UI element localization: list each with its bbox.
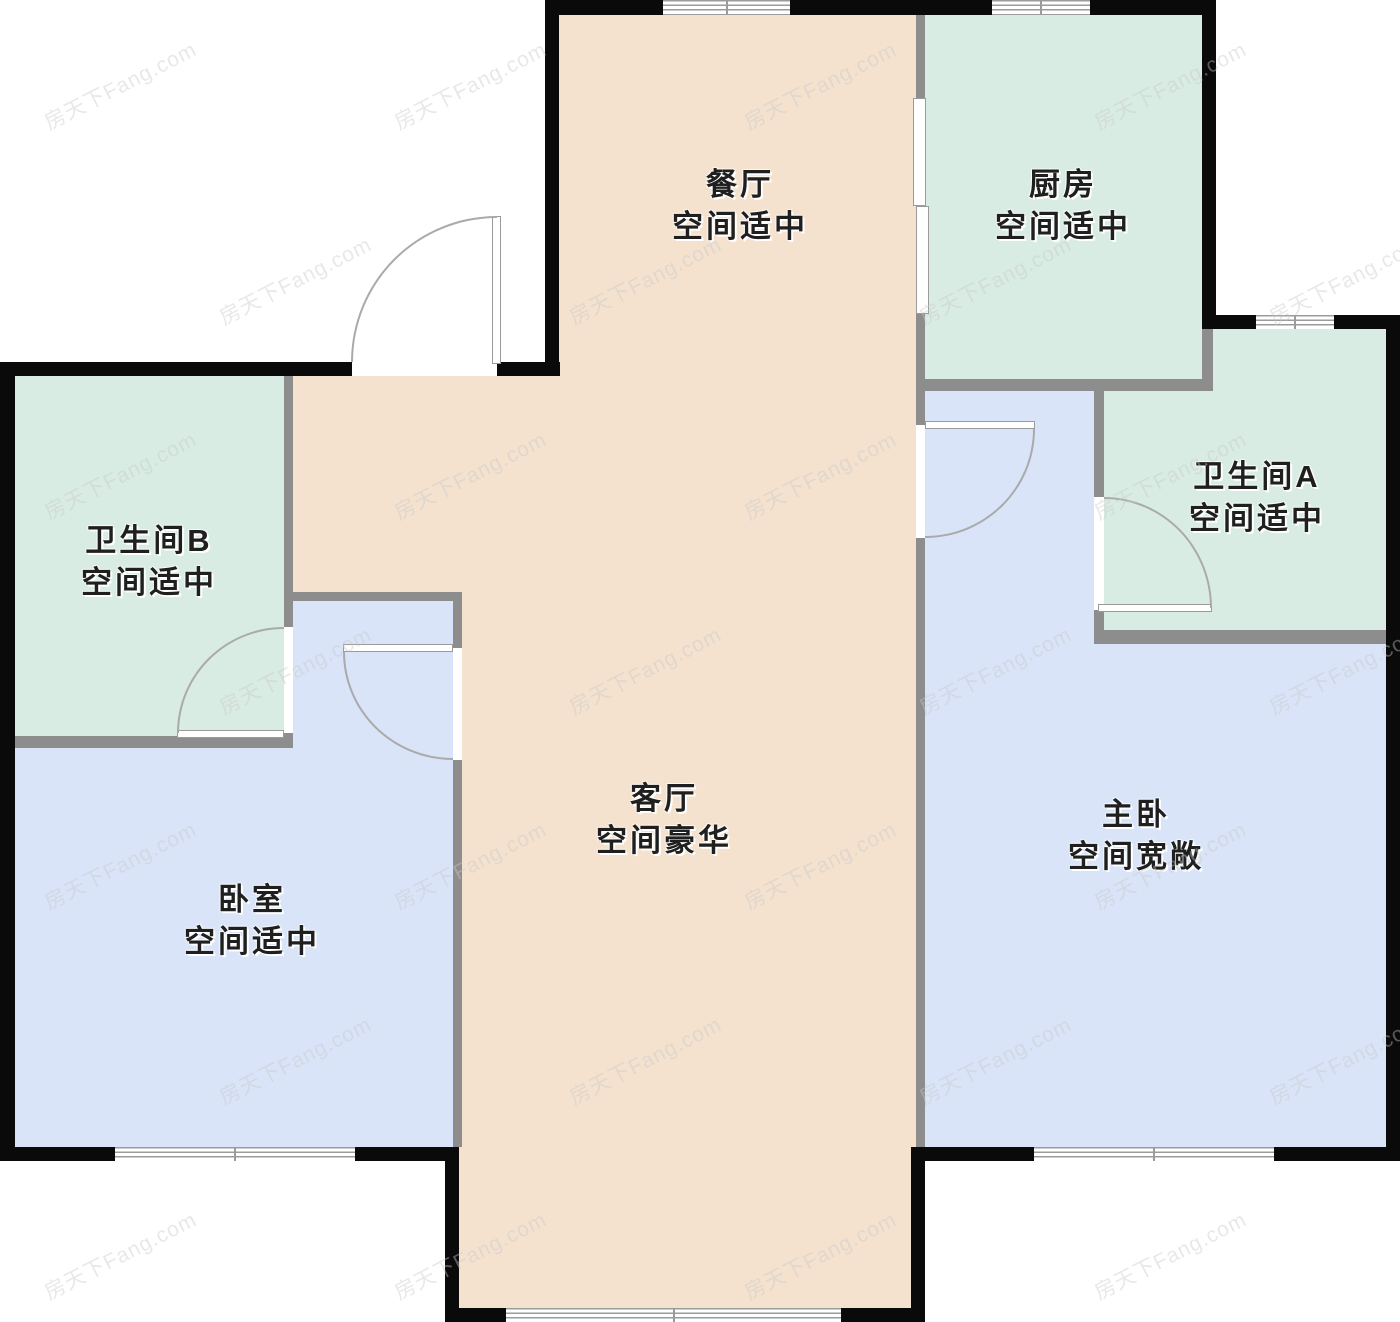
room-area-living-bay: [459, 1147, 911, 1310]
room-space-bedroom: 空间适中: [184, 921, 320, 963]
room-label-living: 客厅 空间豪华: [596, 778, 732, 862]
wall-master-south-east: [1274, 1147, 1400, 1161]
room-label-master: 主卧 空间宽敞: [1068, 794, 1204, 878]
room-label-kitchen: 厨房 空间适中: [995, 164, 1131, 248]
doorway-bathroom-a: [1094, 497, 1104, 610]
doorway-bedroom: [453, 648, 462, 760]
watermark-text: 房天下Fang.com: [39, 1204, 202, 1307]
room-space-bathroom-a: 空间适中: [1189, 498, 1325, 540]
room-name-bathroom-a: 卫生间A: [1189, 456, 1325, 498]
room-area-living: [462, 601, 916, 1147]
room-name-living: 客厅: [596, 778, 732, 820]
doorway-bathroom-b: [284, 627, 293, 733]
room-space-kitchen: 空间适中: [995, 206, 1131, 248]
wall-dining-west: [545, 0, 559, 376]
wall-dining-north-west: [545, 0, 663, 15]
wall-bedroom-east-lower: [453, 760, 462, 1147]
wall-bedroom-north: [284, 592, 462, 601]
floor-plan: 餐厅 空间适中 厨房 空间适中 卫生间A 空间适中 卫生间B 空间适中 客厅 空…: [0, 0, 1400, 1322]
room-area-master: [925, 643, 1386, 1147]
wall-master-west-lower: [916, 538, 925, 1147]
room-area-hallway: [293, 376, 916, 601]
wall-kitchen-north-east: [1090, 0, 1216, 15]
window-kitchen-north: [992, 0, 1090, 15]
room-name-bathroom-b: 卫生间B: [81, 520, 217, 562]
wall-bay-west: [445, 1161, 459, 1322]
wall-master-south-west: [920, 1147, 1034, 1161]
room-label-dining: 餐厅 空间适中: [672, 164, 808, 248]
sliding-door-panel-upper: [913, 98, 926, 206]
wall-kitchen-south: [916, 379, 1213, 391]
wall-entry-north-west: [0, 362, 357, 376]
wall-bay-east: [911, 1147, 925, 1322]
wall-bedroom-south-east: [355, 1147, 459, 1161]
wall-bathroom-a-south: [1094, 630, 1390, 644]
wall-bay-south-east: [841, 1308, 925, 1322]
watermark-text: 房天下Fang.com: [214, 229, 377, 332]
room-label-bedroom: 卧室 空间适中: [184, 879, 320, 963]
window-bedroom-south: [115, 1147, 355, 1161]
wall-bay-south-west: [445, 1308, 506, 1322]
wall-east-exterior: [1386, 315, 1400, 1161]
room-name-master: 主卧: [1068, 794, 1204, 836]
window-bathroom-a-north: [1256, 315, 1334, 329]
door-swing-entry: [351, 216, 497, 362]
room-name-dining: 餐厅: [672, 164, 808, 206]
wall-west-exterior: [0, 362, 15, 1161]
door-leaf-bedroom: [343, 644, 453, 652]
wall-bathroom-a-north-west: [1202, 315, 1256, 329]
wall-bathroom-a-west-upper: [1094, 391, 1104, 497]
wall-bathroom-b-east-upper: [284, 376, 293, 627]
watermark-text: 房天下Fang.com: [39, 34, 202, 137]
wall-master-west-upper: [916, 391, 925, 425]
wall-kitchen-east: [1202, 0, 1216, 329]
room-name-bedroom: 卧室: [184, 879, 320, 921]
sliding-door-panel-lower: [916, 206, 929, 314]
watermark-text: 房天下Fang.com: [1089, 1204, 1252, 1307]
room-label-bathroom-a: 卫生间A 空间适中: [1189, 456, 1325, 540]
room-space-master: 空间宽敞: [1068, 836, 1204, 878]
watermark-text: 房天下Fang.com: [389, 34, 552, 137]
room-name-kitchen: 厨房: [995, 164, 1131, 206]
door-leaf-master: [925, 421, 1035, 429]
wall-dining-north-east: [790, 0, 920, 15]
room-space-bathroom-b: 空间适中: [81, 562, 217, 604]
room-space-living: 空间豪华: [596, 820, 732, 862]
wall-kitchen-west-lower: [916, 310, 925, 379]
room-space-dining: 空间适中: [672, 206, 808, 248]
room-label-bathroom-b: 卫生间B 空间适中: [81, 520, 217, 604]
wall-kitchen-east-step: [1202, 323, 1213, 391]
window-bay-south: [506, 1308, 841, 1322]
window-dining-north: [663, 0, 790, 15]
wall-bedroom-south-west: [0, 1147, 115, 1161]
wall-bedroom-east-upper: [453, 601, 462, 648]
doorway-master: [916, 425, 925, 538]
doorway-entry: [352, 362, 497, 376]
window-master-south: [1034, 1147, 1274, 1161]
wall-kitchen-west-upper: [916, 15, 925, 100]
wall-kitchen-north-west: [920, 0, 992, 15]
